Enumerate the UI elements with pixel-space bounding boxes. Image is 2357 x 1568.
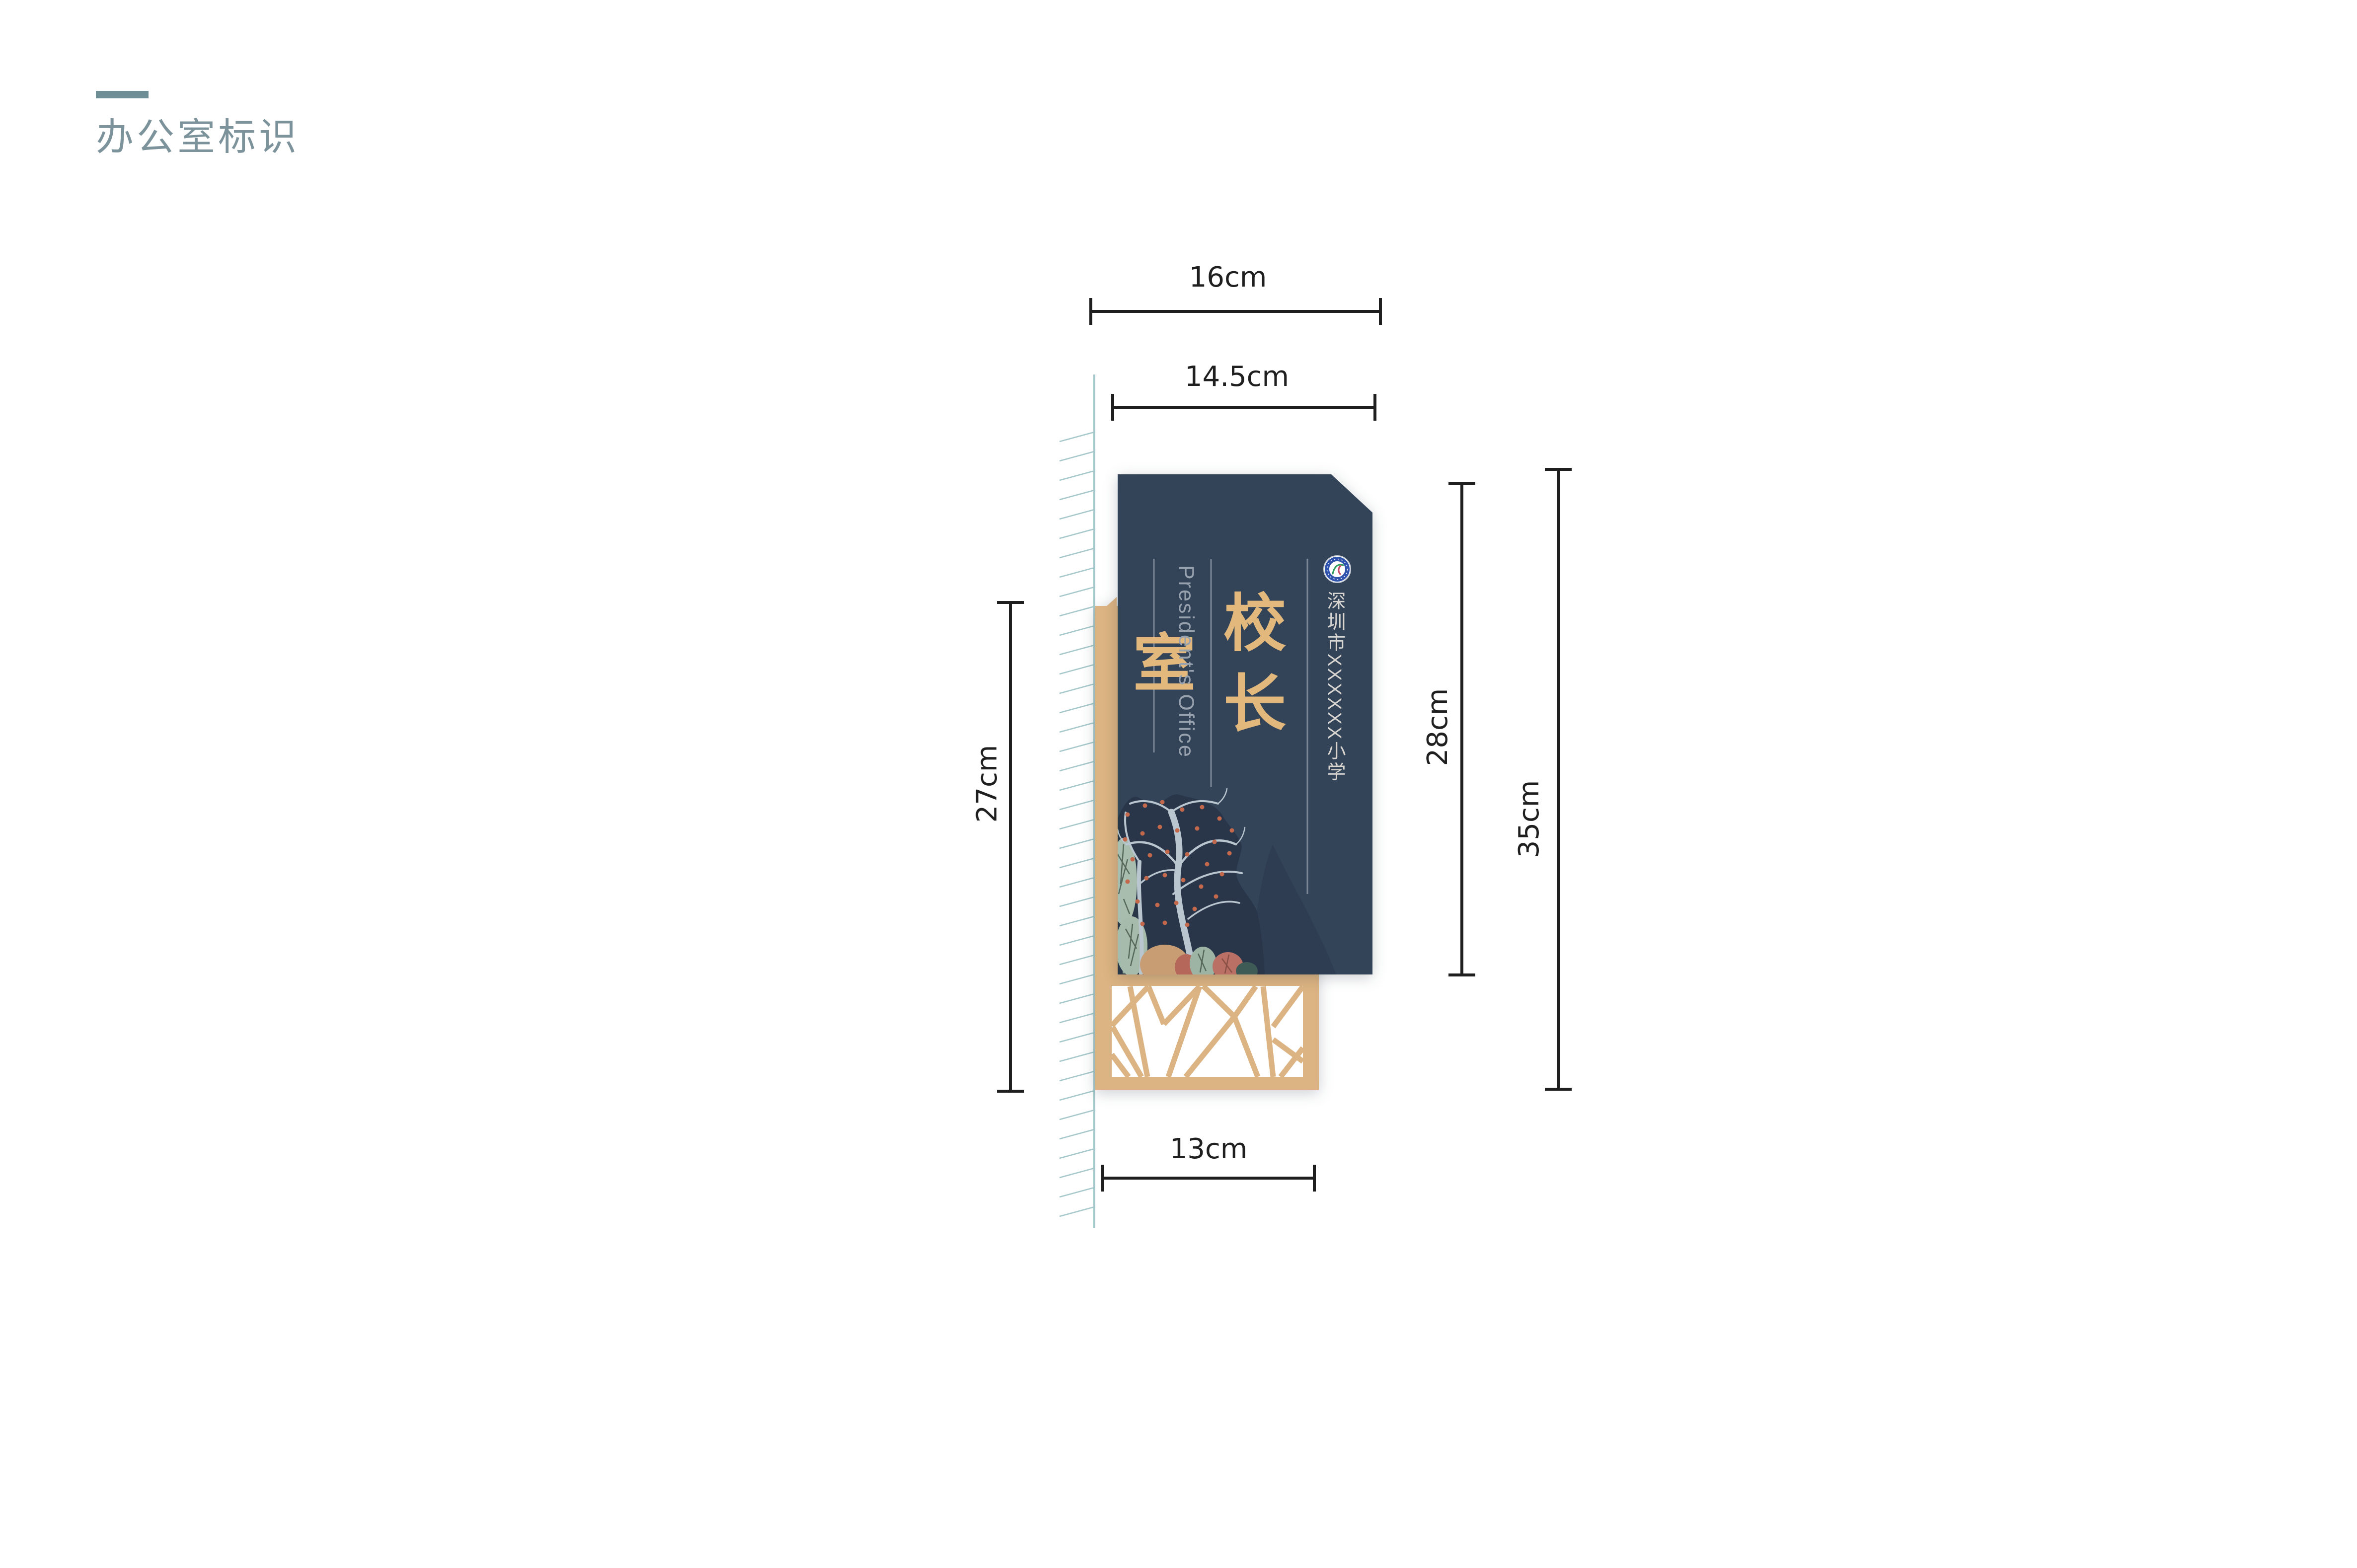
fruit-dot xyxy=(1163,873,1167,878)
fruit-dot xyxy=(1160,800,1165,805)
hatch-mark xyxy=(1060,684,1094,693)
dim-14-5cm-line xyxy=(1113,394,1375,421)
hatch-mark xyxy=(1060,936,1094,945)
fruit-dot xyxy=(1185,923,1190,927)
hatch-mark xyxy=(1060,781,1094,790)
hatch-mark xyxy=(1060,529,1094,538)
hatch-mark xyxy=(1060,1129,1094,1139)
hatch-mark xyxy=(1060,974,1094,984)
hatch-mark xyxy=(1060,1033,1094,1042)
fruit-dot xyxy=(1165,850,1170,854)
fruit-dot xyxy=(1155,903,1160,907)
hatch-mark xyxy=(1060,742,1094,751)
school-badge-icon xyxy=(1324,556,1351,583)
hatch-mark xyxy=(1060,858,1094,868)
fruit-dot xyxy=(1140,922,1145,926)
hatch-mark xyxy=(1060,606,1094,616)
hatch-mark xyxy=(1060,645,1094,655)
dim-16cm-line xyxy=(1091,298,1380,325)
hatch-mark xyxy=(1060,1013,1094,1023)
fruit-dot xyxy=(1199,885,1204,889)
fruit-dot xyxy=(1126,880,1130,884)
dim-label-16cm: 16cm xyxy=(1158,263,1297,293)
fruit-dot xyxy=(1193,907,1197,911)
fruit-dot xyxy=(1195,826,1200,831)
fruit-dot xyxy=(1163,921,1167,925)
fruit-dot xyxy=(1136,899,1140,904)
hatch-mark xyxy=(1060,1188,1094,1197)
hatch-mark xyxy=(1060,703,1094,713)
hatch-mark xyxy=(1060,471,1094,480)
hatch-mark xyxy=(1060,1207,1094,1216)
hatch-mark xyxy=(1060,510,1094,519)
design-sheet: 办公室标识 16cm 14.5cm 13cm 27cm 28cm 35cm 校长… xyxy=(0,0,2357,1568)
hatch-mark xyxy=(1060,916,1094,926)
hatch-mark xyxy=(1060,490,1094,500)
hatch-mark xyxy=(1060,626,1094,635)
fruit-dot xyxy=(1180,808,1185,812)
hatch-mark xyxy=(1060,955,1094,965)
fruit-dot xyxy=(1126,813,1130,817)
fruit-dot xyxy=(1213,840,1217,844)
fruit-dot xyxy=(1227,851,1232,856)
fruit-dot xyxy=(1174,901,1179,905)
hatch-mark xyxy=(1060,432,1094,442)
dim-label-28cm: 28cm xyxy=(1423,658,1453,797)
hatch-mark xyxy=(1060,723,1094,732)
hatch-mark xyxy=(1060,1052,1094,1061)
school-name: 深圳市XXXXXX小学 xyxy=(1327,591,1348,805)
hatch-mark xyxy=(1060,1110,1094,1120)
room-name-en: President's Office xyxy=(1174,565,1198,774)
fruit-dot xyxy=(1220,872,1224,877)
dim-label-27cm: 27cm xyxy=(973,714,1002,853)
fruit-dot xyxy=(1200,805,1205,810)
fruit-dot xyxy=(1217,817,1222,821)
fruit-dot xyxy=(1140,831,1145,836)
hatch-mark xyxy=(1060,839,1094,848)
fruit-dot xyxy=(1214,895,1218,899)
fruit-dot xyxy=(1148,853,1152,858)
hatch-mark xyxy=(1060,820,1094,829)
dim-label-13cm: 13cm xyxy=(1139,1134,1278,1164)
dim-label-14-5cm: 14.5cm xyxy=(1157,362,1316,392)
signage-drawing xyxy=(0,0,2357,1568)
fruit-dot xyxy=(1181,878,1186,883)
wall-section xyxy=(1060,374,1094,1228)
hatch-mark xyxy=(1060,548,1094,558)
dim-label-35cm: 35cm xyxy=(1515,749,1544,889)
wall-hatching xyxy=(1060,432,1094,1216)
fruit-dot xyxy=(1143,804,1147,808)
fruit-dot xyxy=(1158,825,1162,829)
fruit-dot xyxy=(1185,852,1190,857)
page-title: 办公室标识 xyxy=(96,106,300,161)
hatch-mark xyxy=(1060,994,1094,1003)
dim-13cm-line xyxy=(1103,1165,1314,1192)
hatch-mark xyxy=(1060,761,1094,771)
lattice-base xyxy=(1112,986,1303,1077)
fruit-dot xyxy=(1131,857,1135,862)
hatch-mark xyxy=(1060,1091,1094,1100)
hatch-mark xyxy=(1060,897,1094,906)
dim-35cm-line xyxy=(1545,469,1572,1089)
hatch-mark xyxy=(1060,568,1094,577)
fruit-dot xyxy=(1175,828,1180,833)
room-name-cn: 校长室 xyxy=(1227,551,1294,790)
hatch-mark xyxy=(1060,587,1094,597)
fruit-dot xyxy=(1123,837,1128,842)
title-accent-bar xyxy=(96,91,149,98)
hatch-mark xyxy=(1060,451,1094,461)
fruit-dot xyxy=(1144,876,1149,881)
hatch-mark xyxy=(1060,1168,1094,1178)
fruit-dot xyxy=(1205,862,1210,867)
hatch-mark xyxy=(1060,1149,1094,1158)
fruit-dot xyxy=(1230,828,1234,833)
hatch-mark xyxy=(1060,800,1094,810)
hatch-mark xyxy=(1060,665,1094,674)
hatch-mark xyxy=(1060,878,1094,887)
hatch-mark xyxy=(1060,1071,1094,1081)
